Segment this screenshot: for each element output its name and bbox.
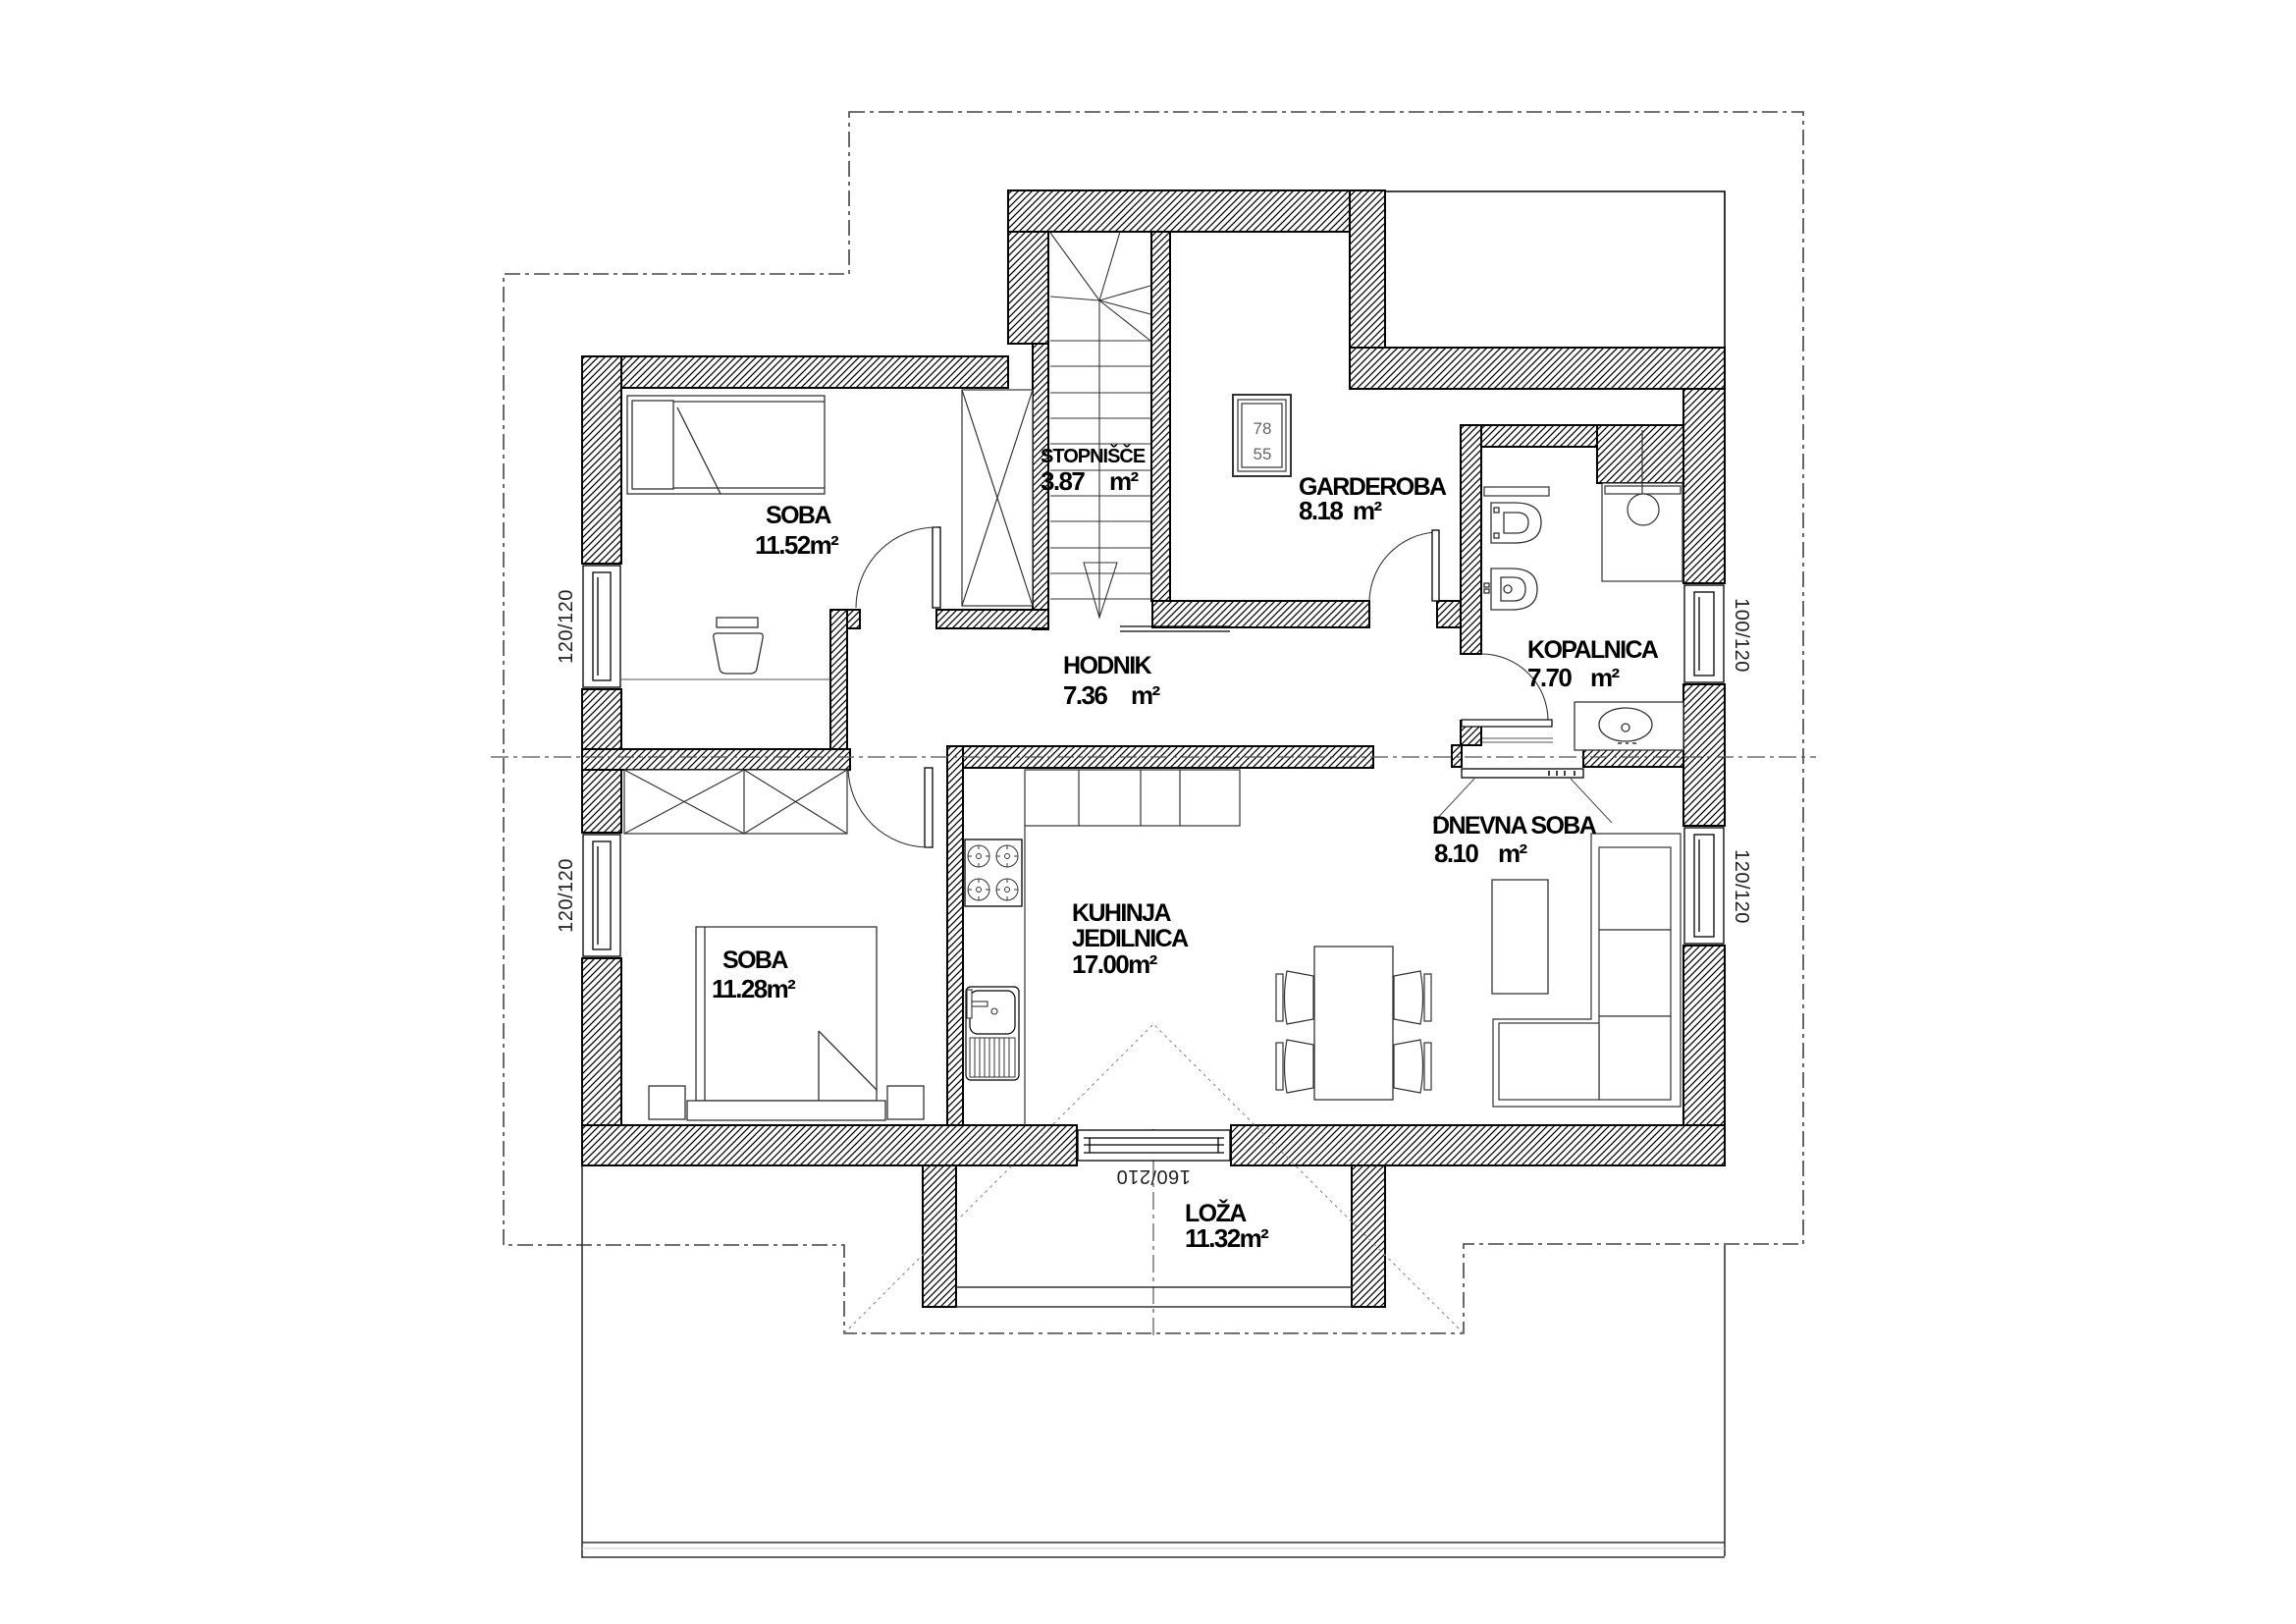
svg-text:KOPALNICA: KOPALNICA: [1527, 636, 1659, 664]
svg-text:STOPNIŠČE: STOPNIŠČE: [1041, 444, 1146, 467]
svg-text:11.28m²: 11.28m²: [712, 974, 796, 1003]
svg-text:SOBA: SOBA: [766, 502, 831, 529]
svg-text:m²: m²: [1353, 496, 1383, 525]
svg-text:SOBA: SOBA: [722, 947, 788, 974]
svg-text:KUHINJA: KUHINJA: [1072, 899, 1171, 927]
svg-text:160/210: 160/210: [1116, 1165, 1191, 1187]
svg-text:17.00m²: 17.00m²: [1072, 949, 1158, 979]
svg-text:m²: m²: [1590, 663, 1621, 692]
svg-text:HODNIK: HODNIK: [1063, 652, 1152, 679]
svg-text:m²: m²: [1109, 466, 1140, 496]
svg-text:JEDILNICA: JEDILNICA: [1072, 925, 1189, 952]
svg-text:DNEVNA SOBA: DNEVNA SOBA: [1432, 812, 1597, 839]
svg-text:m²: m²: [1498, 839, 1528, 868]
svg-text:120/120: 120/120: [556, 589, 577, 664]
svg-text:11.52m²: 11.52m²: [755, 530, 839, 560]
svg-text:8.10: 8.10: [1434, 839, 1478, 868]
svg-text:78: 78: [1254, 419, 1272, 438]
svg-text:7.70: 7.70: [1527, 663, 1572, 692]
svg-text:120/120: 120/120: [556, 858, 577, 933]
svg-text:8.18: 8.18: [1299, 496, 1343, 525]
svg-text:m²: m²: [1131, 680, 1161, 710]
svg-text:7.36: 7.36: [1063, 680, 1107, 710]
svg-text:11.32m²: 11.32m²: [1185, 1223, 1269, 1253]
svg-text:100/120: 100/120: [1731, 598, 1752, 673]
svg-text:3.87: 3.87: [1041, 466, 1085, 496]
svg-text:55: 55: [1254, 445, 1272, 463]
svg-text:120/120: 120/120: [1731, 849, 1752, 924]
